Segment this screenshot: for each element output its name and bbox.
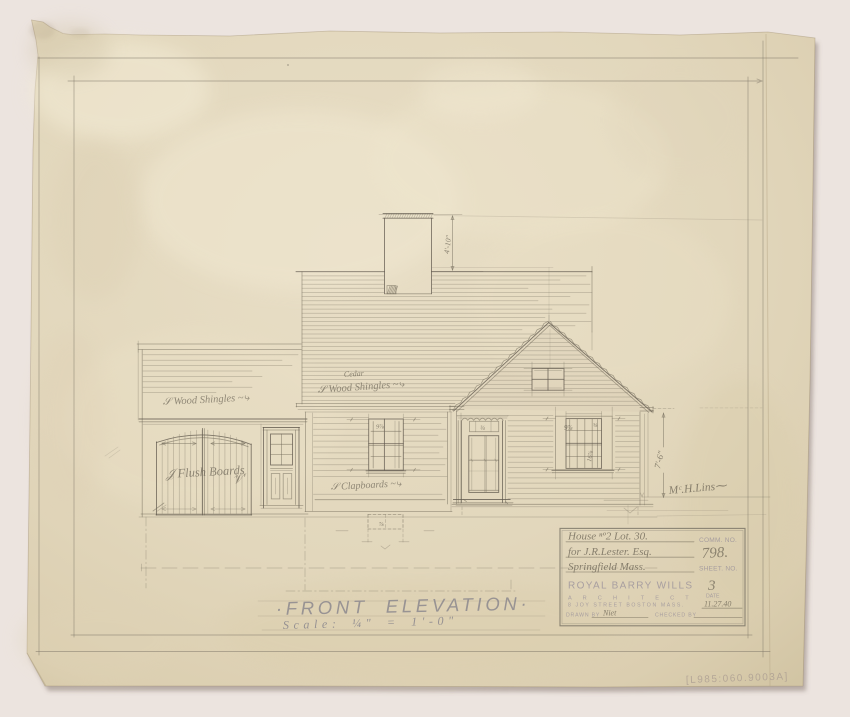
svg-text:11.27.40: 11.27.40 — [704, 600, 731, 609]
svg-text:⅞: ⅞ — [379, 521, 384, 528]
svg-text:COMM. NO.: COMM. NO. — [699, 537, 737, 544]
svg-text:Springfield Mass.: Springfield Mass. — [568, 561, 646, 573]
svg-text:798.: 798. — [701, 545, 728, 562]
svg-text:A R C H I T E C T: A R C H I T E C T — [568, 596, 693, 602]
svg-text:¾: ¾ — [480, 425, 485, 432]
svg-text:8 JOY STREET BOSTON MASS.: 8 JOY STREET BOSTON MASS. — [568, 603, 685, 609]
svg-text:9⅞: 9⅞ — [564, 424, 573, 432]
svg-text:Niet: Niet — [602, 609, 617, 618]
svg-text:SHEET. NO.: SHEET. NO. — [699, 566, 738, 573]
svg-text:CHECKED BY: CHECKED BY — [655, 613, 697, 619]
svg-text:for J.R.Lester. Esq.: for J.R.Lester. Esq. — [568, 546, 652, 558]
svg-text:⅝: ⅝ — [593, 423, 598, 429]
svg-text:9⅞: 9⅞ — [376, 424, 384, 431]
svg-text:ROYAL BARRY WILLS: ROYAL BARRY WILLS — [568, 581, 693, 592]
svg-text:3: 3 — [707, 578, 716, 594]
svg-text:House ⁿº2 Lot. 30.: House ⁿº2 Lot. 30. — [567, 531, 648, 543]
svg-text:Cedar: Cedar — [344, 369, 365, 379]
